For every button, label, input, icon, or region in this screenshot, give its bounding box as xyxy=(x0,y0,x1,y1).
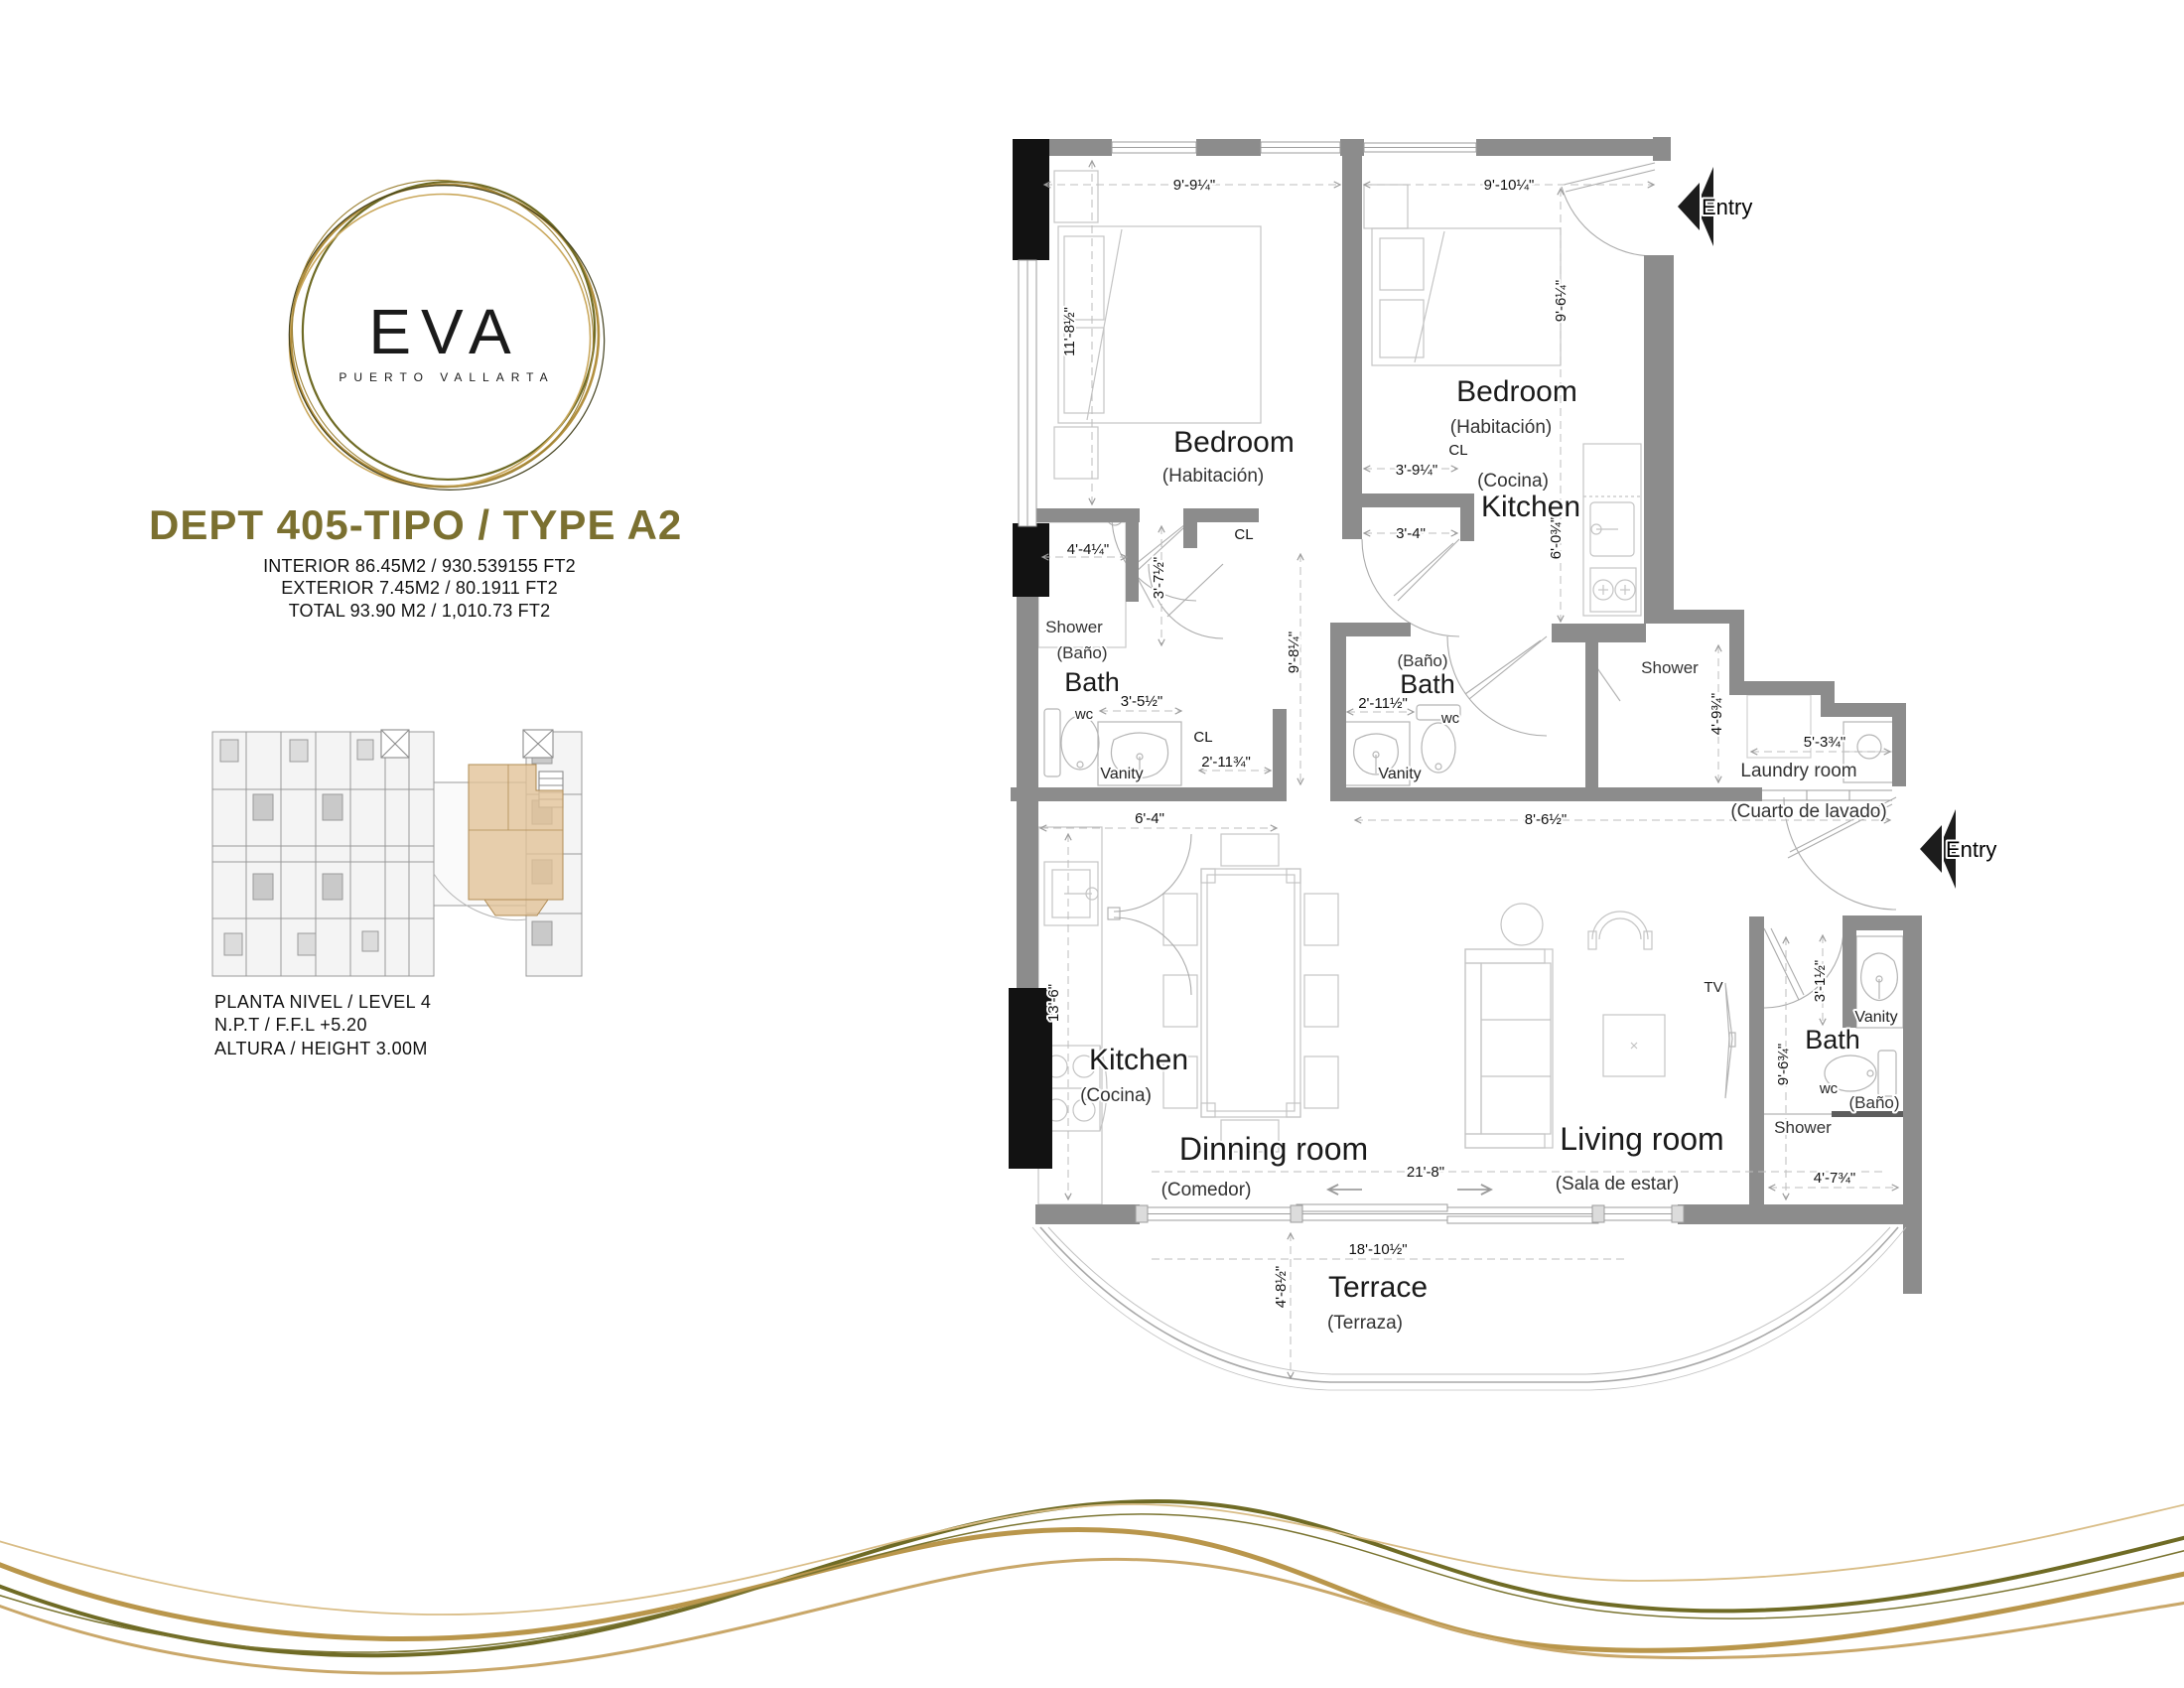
room-sublabel-kitchen-2: (Cocina) xyxy=(1477,471,1549,492)
room-label-bath-3: Bath xyxy=(1805,1025,1860,1055)
interior-area: INTERIOR 86.45M2 / 930.539155 FT2 xyxy=(149,555,690,577)
closet2-label: CL xyxy=(1448,442,1467,459)
sofa xyxy=(1465,949,1553,1148)
dim-bed1-width: 9'-9¼" xyxy=(1173,177,1215,194)
level-line-2: N.P.T / F.F.L +5.20 xyxy=(214,1014,431,1037)
room-label-laundry: Laundry room xyxy=(1740,761,1856,781)
room-sublabel-laundry: (Cuarto de lavado) xyxy=(1730,801,1886,822)
dim-shower1-height: 3'-7½" xyxy=(1151,557,1167,599)
terrace-parapet xyxy=(1032,1227,1906,1390)
wc2-label: wc xyxy=(1440,710,1460,727)
room-label-kitchen-1: Kitchen xyxy=(1089,1044,1188,1076)
tv-label: TV xyxy=(1704,979,1722,996)
room-label-living: Living room xyxy=(1560,1121,1723,1157)
dim-shower1-width: 4'-4¼" xyxy=(1067,541,1109,558)
room-label-terrace: Terrace xyxy=(1328,1271,1428,1304)
dim-hall-opening: 3'-4" xyxy=(1396,525,1426,542)
dim-terrace-height: 4'-8½" xyxy=(1273,1266,1290,1308)
kitchen-2-counter xyxy=(1583,444,1641,616)
room-sublabel-bedroom-2: (Habitación) xyxy=(1450,417,1552,438)
wc1-label: wc xyxy=(1074,706,1094,723)
room-sublabel-bath-3: (Baño) xyxy=(1848,1093,1899,1112)
unit-title: DEPT 405-TIPO / TYPE A2 xyxy=(149,501,844,549)
room-sublabel-living: (Sala de estar) xyxy=(1556,1174,1680,1195)
room-label-bedroom-2: Bedroom xyxy=(1456,375,1577,408)
entry-label-top: Entry xyxy=(1702,195,1752,219)
dim-vanity1-width: 3'-5½" xyxy=(1121,693,1162,710)
dim-bath3-height: 9'-6¾" xyxy=(1775,1044,1792,1085)
wc3-label: wc xyxy=(1819,1080,1839,1097)
dim-kitchen1-height: 13'-6" xyxy=(1045,984,1062,1022)
key-plan xyxy=(199,715,596,1003)
dim-laundry-width: 5'-3¾" xyxy=(1804,734,1845,751)
room-label-dining: Dinning room xyxy=(1179,1131,1368,1167)
dim-bath3-width: 4'-7¾" xyxy=(1814,1170,1855,1187)
floor-plan: 9'-9¼" 9'-10¼" CL 3'-9¼" 3'-4" CL 4'-4¼"… xyxy=(953,119,2065,1460)
room-label-bedroom-1: Bedroom xyxy=(1173,426,1295,459)
entry-threshold xyxy=(1762,790,1892,800)
shower2-label: Shower xyxy=(1641,658,1699,677)
dim-kitchen2-height: 6'-0¾" xyxy=(1548,517,1565,559)
closet-hall-label: CL xyxy=(1234,526,1253,543)
dim-living-width: 21'-8" xyxy=(1407,1164,1444,1181)
room-sublabel-bath-1: (Baño) xyxy=(1056,643,1107,662)
side-table xyxy=(1603,1015,1665,1076)
exterior-area: EXTERIOR 7.45M2 / 80.1911 FT2 xyxy=(149,577,690,599)
dim-bed1-height: 11'-8½" xyxy=(1061,307,1078,356)
level-line-3: ALTURA / HEIGHT 3.00M xyxy=(214,1038,431,1060)
room-sublabel-terrace: (Terraza) xyxy=(1327,1313,1403,1334)
logo-tagline: PUERTO VALLARTA xyxy=(339,370,554,384)
room-label-bath-2: Bath xyxy=(1400,669,1455,699)
dim-hall2-width: 8'-6½" xyxy=(1525,811,1567,828)
dim-terrace-width: 18'-10½" xyxy=(1348,1241,1407,1258)
bed-2 xyxy=(1364,185,1561,365)
dim-kitchen1-width: 6'-4" xyxy=(1135,810,1164,827)
dim-shower2-height: 4'-9¾" xyxy=(1708,693,1725,735)
dim-hall-height: 9'-8¼" xyxy=(1286,632,1302,673)
unit-areas: INTERIOR 86.45M2 / 930.539155 FT2 EXTERI… xyxy=(149,555,690,622)
round-chair-icon xyxy=(1501,904,1543,945)
total-area: TOTAL 93.90 M2 / 1,010.73 FT2 xyxy=(149,600,690,622)
shower3-label: Shower xyxy=(1774,1118,1832,1137)
room-sublabel-bath-2: (Baño) xyxy=(1397,651,1447,670)
vanity2-label: Vanity xyxy=(1378,766,1421,782)
decorative-waves xyxy=(0,1470,2184,1688)
vanity3-label: Vanity xyxy=(1854,1009,1897,1026)
dim-closet1-width: 2'-11¾" xyxy=(1201,754,1251,771)
logo-text: EVA xyxy=(368,296,520,367)
room-sublabel-kitchen-1: (Cocina) xyxy=(1080,1085,1152,1106)
vanity1-label: Vanity xyxy=(1100,766,1143,782)
door-swings xyxy=(1107,163,1896,1008)
arc-chair-icon xyxy=(1588,912,1652,949)
entry-label-side: Entry xyxy=(1946,837,1996,862)
dining-table xyxy=(1163,834,1338,1152)
dim-bed2-width: 9'-10¼" xyxy=(1484,177,1535,194)
title-block: DEPT 405-TIPO / TYPE A2 INTERIOR 86.45M2… xyxy=(149,501,844,622)
room-sublabel-bedroom-1: (Habitación) xyxy=(1162,466,1264,487)
dim-bath3-vanity: 3'-1½" xyxy=(1812,960,1829,1002)
room-label-kitchen-2: Kitchen xyxy=(1481,491,1580,523)
closet1-label: CL xyxy=(1193,729,1212,746)
dim-bed2-height: 9'-6¼" xyxy=(1553,280,1570,322)
tv-icon xyxy=(1725,983,1735,1098)
dim-closet2-width: 3'-9¼" xyxy=(1396,462,1437,479)
room-sublabel-dining: (Comedor) xyxy=(1161,1180,1252,1200)
room-label-bath-1: Bath xyxy=(1064,667,1120,697)
shower1-label: Shower xyxy=(1045,618,1103,636)
plan-text-layer: 9'-9¼" 9'-10¼" CL 3'-9¼" 3'-4" CL 4'-4¼"… xyxy=(1045,177,1996,1334)
